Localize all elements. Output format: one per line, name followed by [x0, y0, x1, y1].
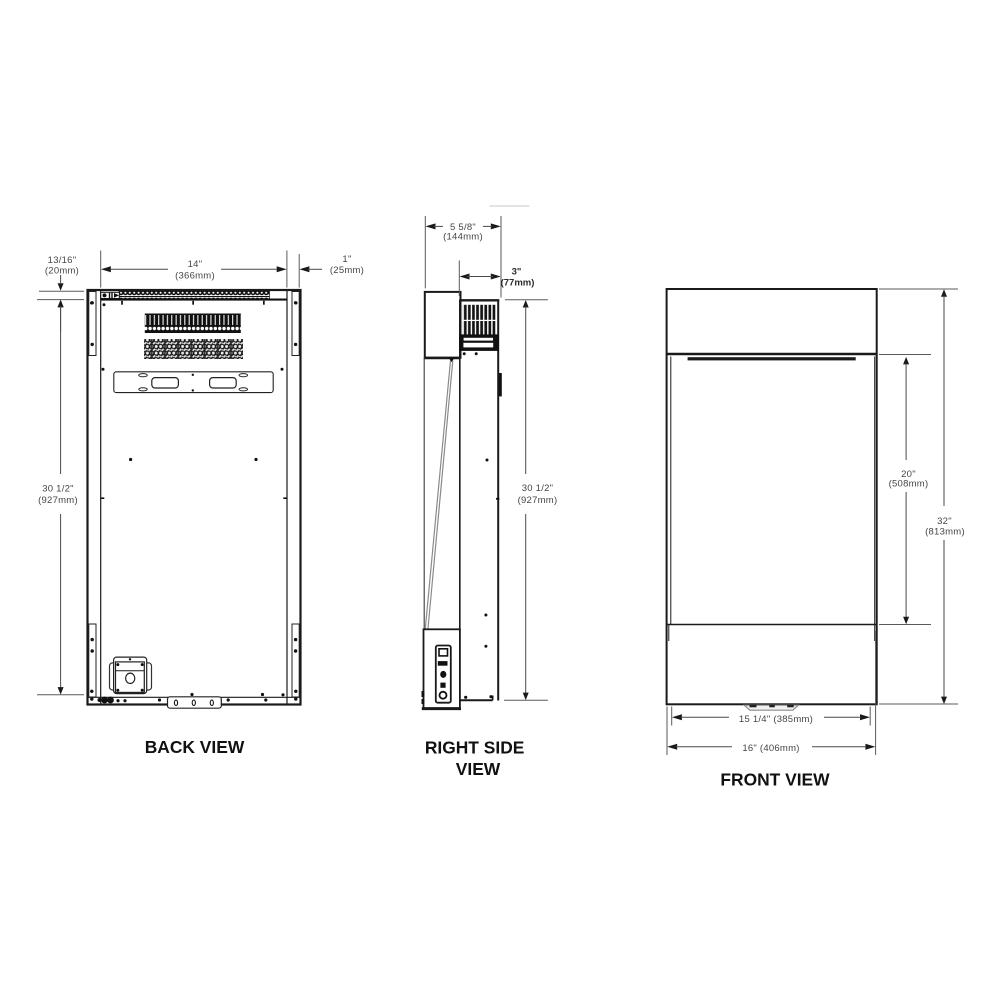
svg-text:FRONT VIEW: FRONT VIEW — [720, 769, 830, 789]
svg-text:(77mm): (77mm) — [501, 278, 535, 289]
svg-text:(927mm): (927mm) — [518, 495, 558, 506]
svg-text:13/16": 13/16" — [48, 255, 77, 266]
svg-text:1": 1" — [342, 254, 351, 265]
svg-text:16" (406mm): 16" (406mm) — [742, 743, 799, 754]
svg-text:15 1/4" (385mm): 15 1/4" (385mm) — [739, 714, 813, 725]
svg-text:(927mm): (927mm) — [38, 495, 78, 506]
svg-text:(25mm): (25mm) — [330, 265, 364, 276]
svg-text:30 1/2": 30 1/2" — [522, 483, 554, 494]
svg-text:RIGHT SIDE: RIGHT SIDE — [425, 738, 525, 758]
svg-text:14": 14" — [188, 259, 203, 270]
svg-text:32": 32" — [937, 516, 952, 527]
svg-text:(20mm): (20mm) — [45, 266, 79, 277]
svg-text:(813mm): (813mm) — [925, 527, 965, 538]
svg-text:VIEW: VIEW — [456, 759, 501, 779]
svg-text:30 1/2": 30 1/2" — [42, 484, 74, 495]
svg-text:BACK VIEW: BACK VIEW — [145, 737, 245, 757]
svg-text:(144mm): (144mm) — [443, 232, 483, 243]
svg-text:(366mm): (366mm) — [175, 271, 215, 282]
svg-text:(508mm): (508mm) — [889, 479, 929, 490]
svg-text:3": 3" — [512, 267, 522, 278]
